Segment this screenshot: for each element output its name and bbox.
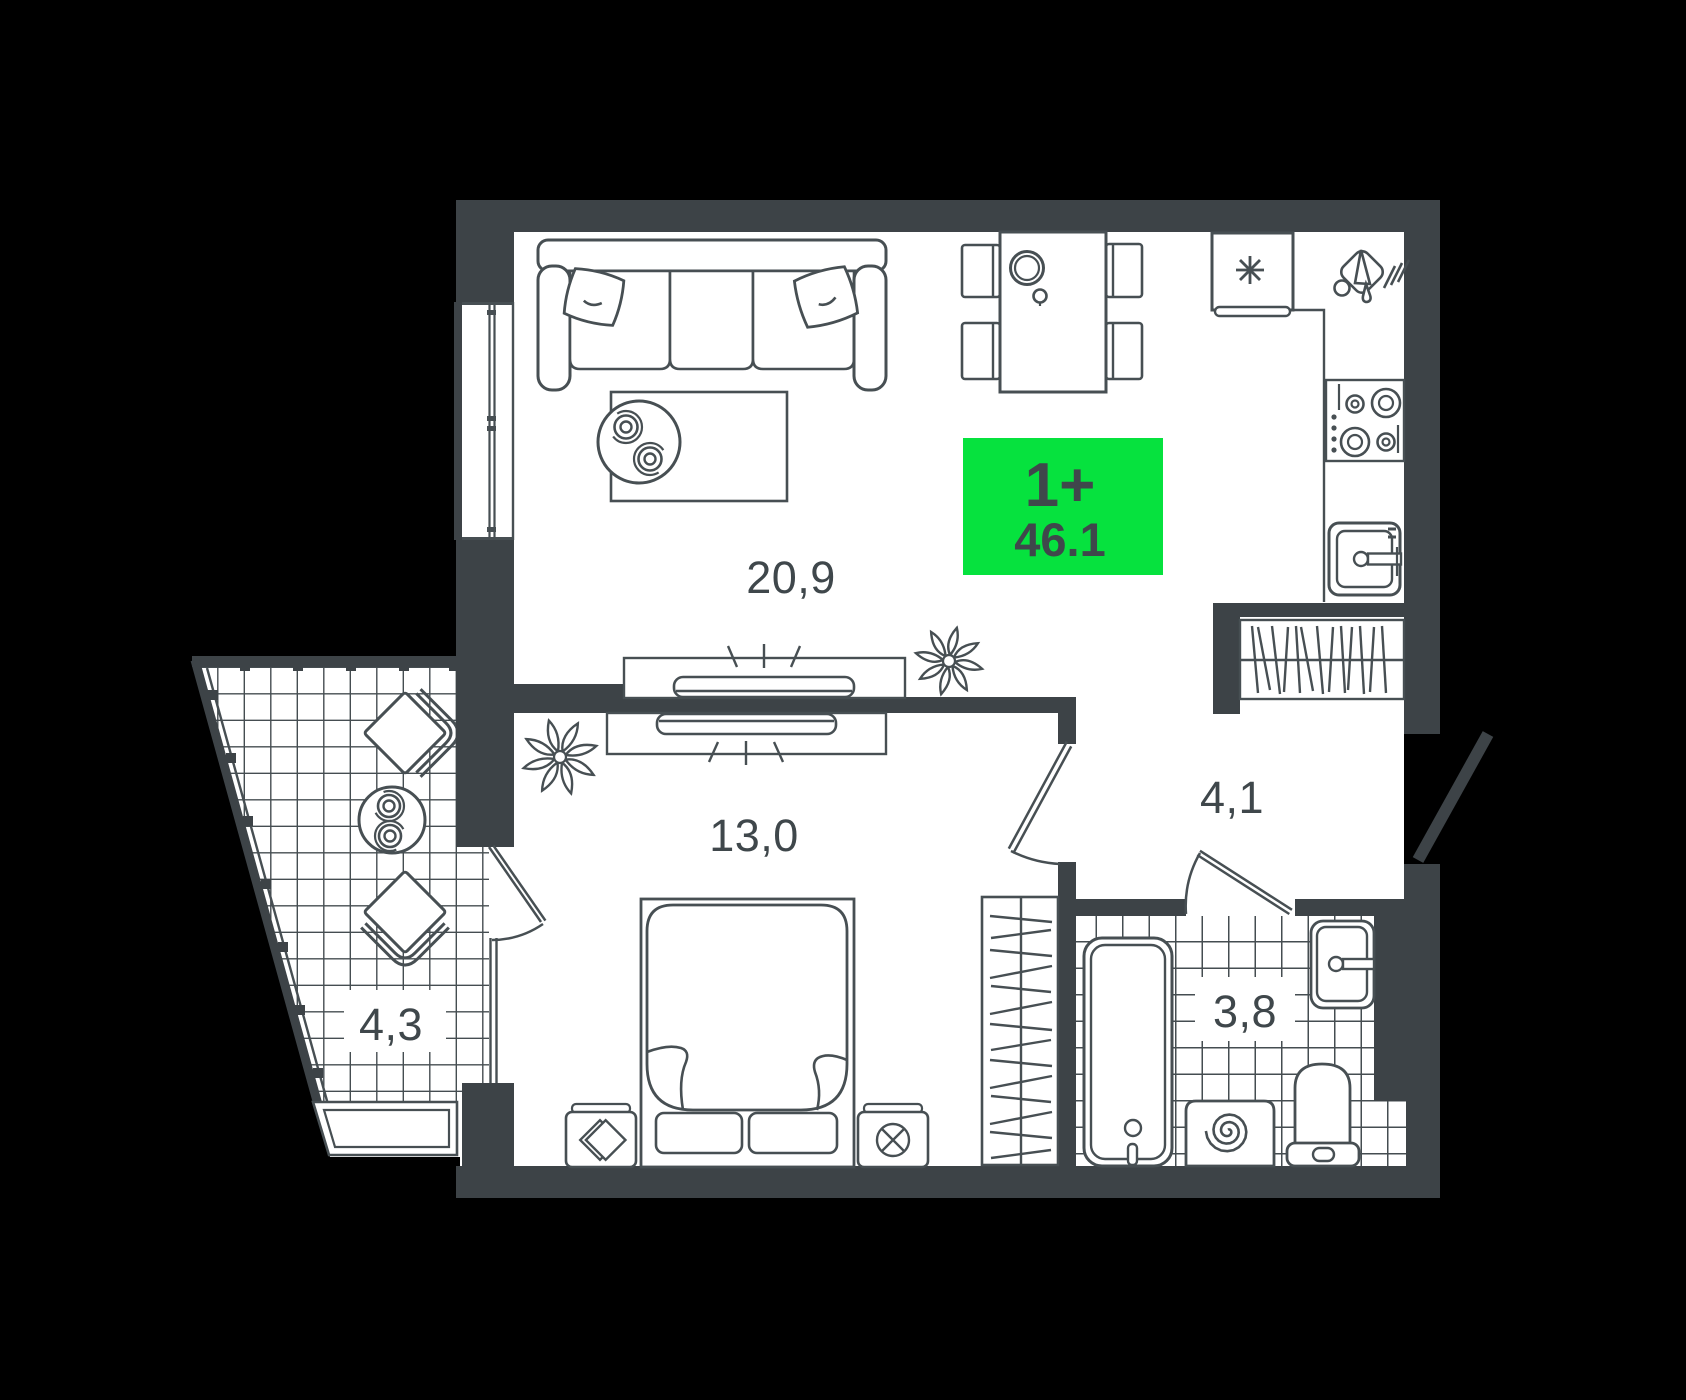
svg-text:4,3: 4,3 bbox=[359, 999, 423, 1050]
svg-text:20,9: 20,9 bbox=[746, 552, 836, 603]
svg-text:1+: 1+ bbox=[1025, 451, 1096, 520]
svg-text:13,0: 13,0 bbox=[709, 810, 799, 861]
svg-text:3,8: 3,8 bbox=[1213, 986, 1277, 1037]
svg-text:4,1: 4,1 bbox=[1200, 772, 1264, 823]
svg-text:46.1: 46.1 bbox=[1014, 513, 1105, 566]
